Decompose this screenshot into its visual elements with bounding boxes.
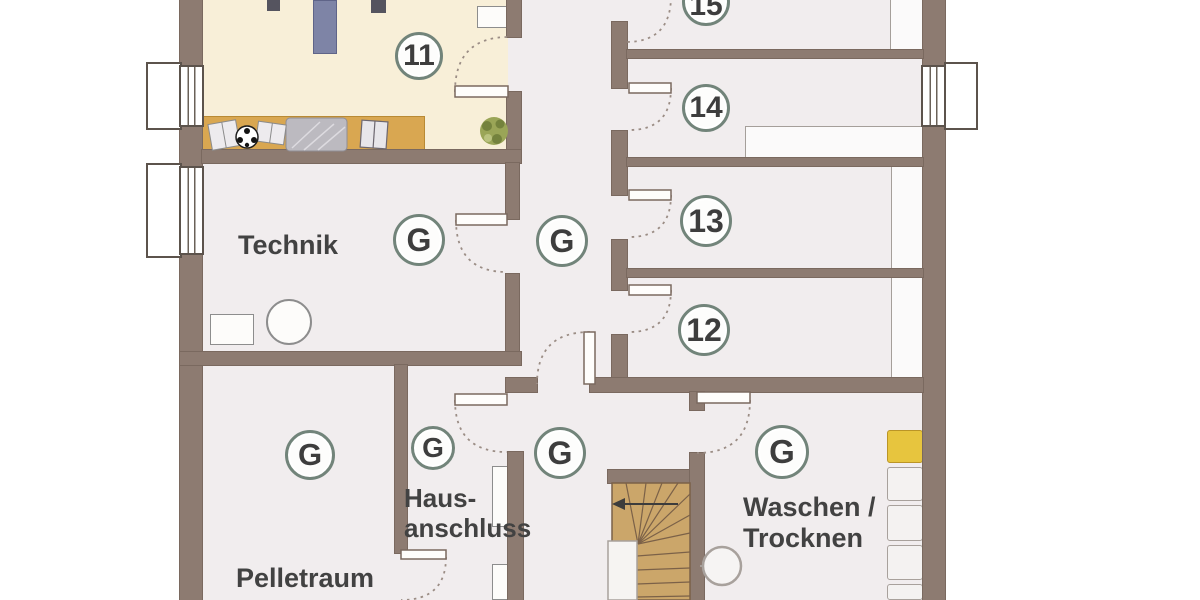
wall-segment xyxy=(690,392,704,410)
laundry-box-yellow xyxy=(887,430,923,463)
g-marker-pelletraum: G xyxy=(285,430,335,480)
room-number-11: 11 xyxy=(395,32,443,80)
wall-stairs-top xyxy=(608,470,692,483)
wall-room11-bottom xyxy=(202,150,521,163)
g-marker-waschen-trocknen: G xyxy=(755,425,809,479)
wall-segment xyxy=(507,0,521,37)
room-label-hausanschluss: Haus- anschluss xyxy=(404,484,531,544)
window-well xyxy=(146,62,182,130)
laundry-box xyxy=(887,505,923,541)
room-number-13: 13 xyxy=(680,195,732,247)
window xyxy=(921,65,946,127)
wall-shelf-room14 xyxy=(745,126,923,158)
room-number-12: 12 xyxy=(678,304,730,356)
g-marker-stair-hall: G xyxy=(534,427,586,479)
g-marker-technik: G xyxy=(393,214,445,266)
wall-partition-13-12 xyxy=(627,269,923,277)
chair-back xyxy=(267,0,280,11)
g-marker-corridor: G xyxy=(536,215,588,267)
wall-segment xyxy=(590,378,923,392)
wall-shelf-room15 xyxy=(890,0,923,51)
wall-stairs-right xyxy=(690,453,704,600)
window xyxy=(179,166,204,255)
wall-segment xyxy=(612,131,627,195)
room-label-technik: Technik xyxy=(238,230,338,261)
wall-segment xyxy=(612,240,627,290)
laundry-box xyxy=(887,545,923,580)
laundry-box xyxy=(887,467,923,501)
window-well xyxy=(944,62,978,130)
window xyxy=(179,65,204,127)
floor-plan: 11 15 14 13 12 G G G G G G Technik Pelle… xyxy=(0,0,1200,600)
room-number-14: 14 xyxy=(682,84,730,132)
wall-shelf-room12 xyxy=(891,277,923,378)
wall-segment xyxy=(506,378,537,392)
window-well xyxy=(146,163,182,258)
wall-segment xyxy=(612,22,627,88)
room-label-pelletraum: Pelletraum xyxy=(236,563,374,594)
wall-shelf-room13 xyxy=(891,166,923,269)
wall-segment xyxy=(612,335,627,378)
wall-partition-14-13 xyxy=(627,158,923,166)
room-label-waschen-trocknen: Waschen / Trocknen xyxy=(743,492,876,554)
sideboard xyxy=(202,116,425,152)
wall-technik-bottom xyxy=(180,352,521,365)
laundry-box xyxy=(887,584,923,600)
wall-segment xyxy=(506,163,519,219)
wall-partition-15-14 xyxy=(627,50,923,58)
boiler-circle xyxy=(266,299,312,345)
equipment-box xyxy=(210,314,254,345)
desk xyxy=(313,0,337,54)
g-marker-hausanschluss: G xyxy=(411,426,455,470)
chair-back xyxy=(371,0,386,13)
